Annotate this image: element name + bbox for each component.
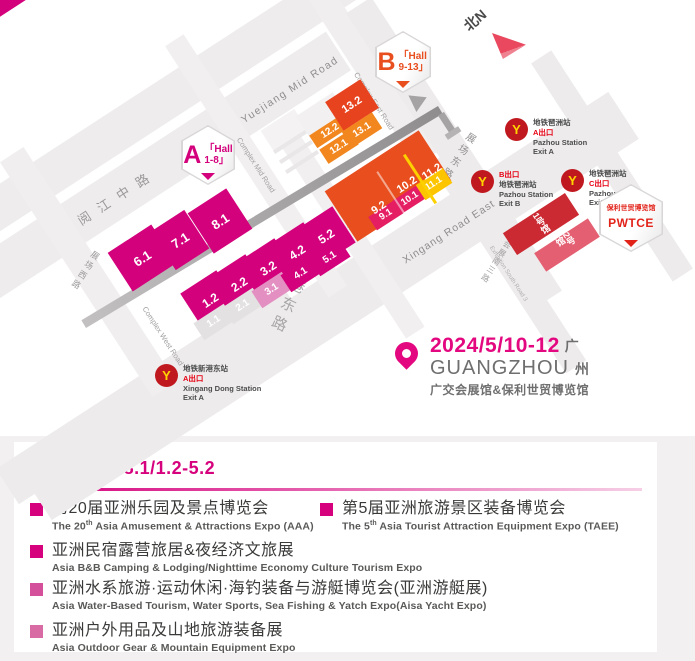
badge-b-letter: B <box>377 48 395 77</box>
event-info: 2024/5/10-12 广 GUANGZHOU 州 广交会展馆&保利世贸博览馆 <box>393 334 613 398</box>
venue-map: 北N A 「Hall 1-8」 B 「Hall 9-13」 <box>0 0 695 436</box>
expo-title-cn: 第20届亚洲乐园及景点博览会 <box>52 499 314 519</box>
metro-station-pazhou-station-exit-b: YB出口地铁琶洲站Pazhou StationExit B <box>471 170 553 209</box>
event-date: 2024/5/10-12 <box>430 334 560 358</box>
bullet-icon <box>30 545 43 558</box>
metro-logo-icon: Y <box>561 169 584 192</box>
metro-station-xingang-dong-station-exit-a: Y地铁新港东站A出口Xingang Dong StationExit A <box>155 364 261 403</box>
event-venues: 广交会展馆&保利世贸博览馆 <box>430 381 613 398</box>
pwtce-name-en: PWTCE <box>608 216 654 232</box>
expo-item-1: 第5届亚洲旅游景区装备博览会 The 5th Asia Tourist Attr… <box>320 499 655 533</box>
event-city-en: GUANGZHOU <box>430 357 569 380</box>
expo-title-en: The 20th Asia Amusement & Attractions Ex… <box>52 520 314 533</box>
station-label: Exit B <box>499 199 553 209</box>
station-label: 地铁琶洲站 <box>533 118 587 128</box>
divider <box>30 488 642 491</box>
badge-a-line2: 1-8」 <box>204 155 232 167</box>
hall-badge-b: B 「Hall 9-13」 <box>375 31 431 93</box>
location-pin-icon <box>390 337 423 370</box>
event-city-cn-1: 广 <box>565 336 579 356</box>
metro-logo-icon: Y <box>155 364 178 387</box>
station-label: 地铁琶洲站 <box>589 169 643 179</box>
event-city-cn-2: 州 <box>575 359 589 379</box>
expo-title-cn: 第5届亚洲旅游景区装备博览会 <box>342 499 619 519</box>
metro-station-pazhou-station-exit-a: Y地铁琶洲站A出口Pazhou StationExit A <box>505 118 587 157</box>
station-label: 地铁新港东站 <box>183 364 261 374</box>
expo-title-en: Asia Water-Based Tourism, Water Sports, … <box>52 600 488 612</box>
station-label: A出口 <box>533 128 587 138</box>
station-label: A出口 <box>183 374 261 384</box>
expo-item-4: 亚洲户外用品及山地旅游装备展 Asia Outdoor Gear & Mount… <box>30 621 654 654</box>
metro-logo-icon: Y <box>505 118 528 141</box>
expo-item-3: 亚洲水系旅游·运动休闲·海钓装备与游艇博览会(亚洲游艇展) Asia Water… <box>30 579 654 612</box>
badge-a-line1: 「Hall <box>204 144 232 156</box>
hall-badge-a: A 「Hall 1-8」 <box>181 125 235 185</box>
pwtce-badge: 保利世贸博览馆 PWTCE <box>599 184 663 252</box>
station-label: Exit A <box>183 393 261 403</box>
bullet-icon <box>30 625 43 638</box>
expo-title-en: The 5th Asia Tourist Attraction Equipmen… <box>342 520 619 533</box>
bullet-icon <box>320 503 333 516</box>
north-arrow-icon <box>492 33 526 59</box>
pwtce-name-cn: 保利世贸博览馆 <box>607 204 656 213</box>
station-label: Pazhou Station <box>499 190 553 200</box>
metro-logo-icon: Y <box>471 170 494 193</box>
badge-a-letter: A <box>183 141 201 170</box>
badge-b-line1: 「Hall <box>399 51 429 63</box>
expo-title-en: Asia Outdoor Gear & Mountain Equipment E… <box>52 642 295 654</box>
bullet-icon <box>30 583 43 596</box>
expo-title-cn: 亚洲水系旅游·运动休闲·海钓装备与游艇博览会(亚洲游艇展) <box>52 579 488 599</box>
station-label: B出口 <box>499 170 553 180</box>
compass-north-label: 北N <box>459 5 490 36</box>
expo-title-cn: 亚洲民宿露营旅居&夜经济文旅展 <box>52 541 422 561</box>
expo-item-2: 亚洲民宿露营旅居&夜经济文旅展 Asia B&B Camping & Lodgi… <box>30 541 654 574</box>
expo-title-cn: 亚洲户外用品及山地旅游装备展 <box>52 621 295 641</box>
expo-title-en: Asia B&B Camping & Lodging/Nighttime Eco… <box>52 562 422 574</box>
badge-pointer-icon <box>624 240 638 247</box>
expo-venue-page: 北N A 「Hall 1-8」 B 「Hall 9-13」 <box>0 0 695 661</box>
station-label: 地铁琶洲站 <box>499 180 553 190</box>
station-label: Pazhou Station <box>533 138 587 148</box>
corner-block <box>0 0 36 24</box>
station-label: Exit A <box>533 147 587 157</box>
station-label: Xingang Dong Station <box>183 384 261 394</box>
badge-pointer-icon <box>201 173 215 180</box>
badge-b-line2: 9-13」 <box>399 62 429 74</box>
badge-pointer-icon <box>396 81 410 88</box>
